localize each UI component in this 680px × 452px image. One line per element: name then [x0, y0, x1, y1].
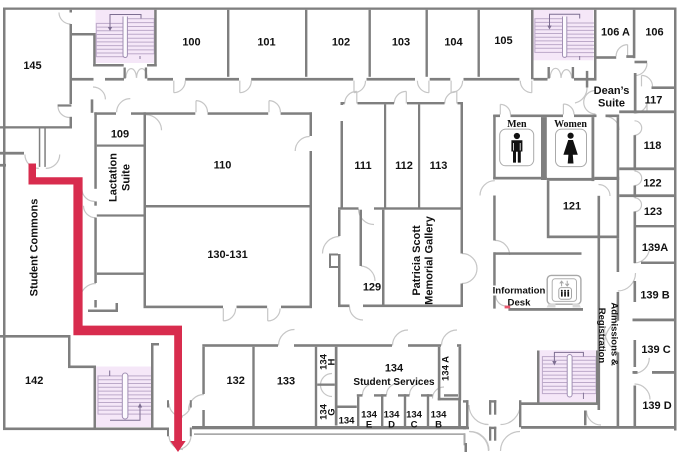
svg-text:139 B: 139 B — [640, 290, 669, 302]
svg-text:121: 121 — [563, 201, 581, 213]
svg-text:103: 103 — [392, 37, 410, 49]
svg-text:113: 113 — [430, 160, 448, 172]
svg-text:110: 110 — [214, 160, 232, 172]
svg-text:E: E — [366, 420, 372, 431]
svg-text:Women: Women — [554, 119, 587, 130]
svg-text:Suite: Suite — [598, 98, 625, 110]
svg-text:112: 112 — [395, 160, 413, 172]
svg-text:C: C — [411, 420, 418, 431]
svg-text:102: 102 — [332, 37, 350, 49]
svg-text:Admissions &: Admissions & — [609, 302, 620, 365]
svg-text:Information: Information — [493, 286, 546, 297]
svg-text:132: 132 — [227, 375, 245, 387]
svg-text:134: 134 — [385, 363, 404, 375]
svg-text:130-131: 130-131 — [207, 249, 247, 261]
svg-text:105: 105 — [494, 35, 512, 47]
svg-text:Men: Men — [507, 119, 527, 130]
svg-text:Student Commons: Student Commons — [28, 199, 40, 297]
svg-text:142: 142 — [25, 375, 43, 387]
svg-text:Suite: Suite — [121, 164, 133, 191]
svg-text:139 C: 139 C — [641, 344, 670, 356]
svg-text:111: 111 — [354, 160, 371, 172]
svg-text:106: 106 — [645, 27, 663, 39]
svg-text:139A: 139A — [642, 242, 668, 254]
svg-text:123: 123 — [644, 206, 662, 218]
svg-text:117: 117 — [645, 95, 663, 107]
svg-text:106 A: 106 A — [601, 27, 630, 39]
svg-text:Lactation: Lactation — [108, 153, 120, 202]
svg-text:G: G — [326, 408, 337, 415]
svg-text:H: H — [326, 358, 337, 365]
svg-text:139 D: 139 D — [642, 400, 671, 412]
svg-text:129: 129 — [363, 282, 381, 294]
svg-text:B: B — [435, 420, 442, 431]
svg-text:101: 101 — [257, 37, 275, 49]
svg-text:145: 145 — [23, 60, 41, 72]
svg-text:Registration: Registration — [596, 308, 607, 364]
svg-text:Dean’s: Dean’s — [594, 85, 630, 97]
svg-text:Memorial Gallery: Memorial Gallery — [424, 215, 436, 305]
svg-text:100: 100 — [182, 37, 200, 49]
svg-text:Student Services: Student Services — [353, 377, 435, 388]
svg-text:104: 104 — [444, 37, 463, 49]
svg-text:Patricia Scott: Patricia Scott — [411, 225, 423, 296]
svg-text:D: D — [388, 420, 395, 431]
svg-text:Desk: Desk — [508, 298, 532, 309]
svg-text:109: 109 — [111, 129, 129, 141]
svg-text:133: 133 — [277, 376, 295, 388]
svg-text:118: 118 — [644, 140, 662, 152]
svg-text:134: 134 — [339, 416, 356, 427]
svg-text:122: 122 — [643, 178, 661, 190]
svg-text:134 A: 134 A — [441, 356, 452, 381]
